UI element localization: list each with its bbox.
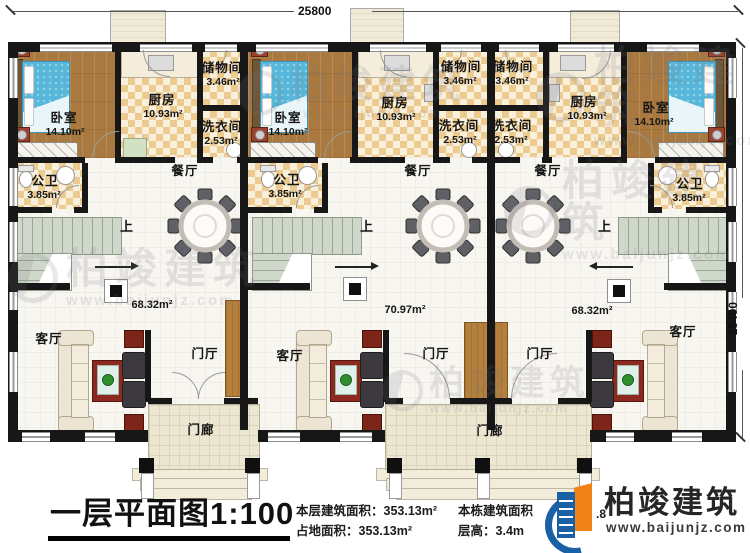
column	[607, 279, 631, 303]
wall-interior	[621, 52, 627, 157]
room-area-kitchen: 10.93m²	[567, 111, 606, 122]
column	[343, 277, 367, 301]
room-label-kitchen: 厨房	[381, 97, 408, 110]
window	[728, 58, 737, 98]
window	[647, 44, 699, 52]
dim-tick	[5, 5, 16, 16]
room-area-storage: 3.46m²	[495, 76, 528, 87]
room-area-bath: 3.85m²	[268, 189, 301, 200]
wall-entry	[224, 398, 258, 404]
dining-table-set	[405, 188, 481, 264]
wall-interior	[433, 157, 450, 163]
window	[728, 352, 737, 392]
logo-building-orange	[574, 483, 592, 531]
dim-line-top	[12, 11, 294, 12]
armchair	[590, 352, 614, 379]
dim-label-width: 25800	[298, 5, 331, 17]
porch-column	[577, 458, 592, 473]
sofa	[309, 344, 327, 418]
bathroom-sink	[56, 166, 75, 185]
room-label-dining: 餐厅	[171, 165, 198, 178]
floor-plan-canvas: 25800 15400	[0, 0, 750, 553]
stat-value: 353.13m²	[359, 524, 413, 538]
window	[268, 432, 300, 442]
window	[256, 44, 328, 52]
window	[9, 58, 18, 98]
room-label-laundry: 洗衣间	[492, 120, 533, 133]
stat-land-area: 占地面积：353.13m²	[296, 525, 412, 538]
room-label-storage: 储物间	[441, 61, 482, 74]
room-area-bedroom: 14.10m²	[45, 127, 84, 138]
side-table	[124, 330, 144, 348]
armchair	[590, 381, 614, 408]
wall-interior	[578, 157, 627, 163]
room-label-bath: 公卫	[31, 175, 58, 188]
room-area-storage: 3.46m²	[206, 77, 239, 88]
stat-label: 本层建筑面积：	[296, 504, 384, 518]
plan-title-text: 一层平面图	[50, 496, 210, 531]
room-area-bedroom: 14.10m²	[634, 117, 673, 128]
room-label-storage: 储物间	[202, 62, 243, 75]
unit-area-label: 70.97m²	[385, 305, 426, 316]
room-label-dining: 餐厅	[404, 165, 431, 178]
stair-arrow-line	[95, 266, 131, 268]
wood-panel	[464, 322, 508, 404]
armchair	[122, 352, 146, 379]
stair-arrow	[131, 262, 139, 270]
stat-value: 353.13m²	[384, 504, 438, 518]
stat-floor-height: 层高：3.4m	[458, 525, 524, 538]
title-underline	[48, 536, 290, 541]
flue-projection	[570, 10, 620, 45]
stair-flight	[12, 217, 122, 255]
wall-foyer	[586, 330, 592, 402]
bed-pillow	[24, 98, 34, 126]
room-area-kitchen: 10.93m²	[143, 109, 182, 120]
room-area-laundry: 2.53m²	[443, 135, 476, 146]
porch-column	[475, 458, 490, 473]
wall-bath	[8, 207, 52, 213]
dim-tick	[735, 38, 746, 49]
flue-projection	[350, 8, 404, 45]
window	[9, 292, 18, 310]
porch-column-base	[389, 473, 402, 499]
bathroom-sink	[658, 166, 677, 185]
room-label-porch: 门廊	[476, 425, 503, 438]
room-label-dining: 餐厅	[534, 165, 561, 178]
logo-building-blue	[557, 492, 575, 538]
stair-up-label: 上	[360, 220, 373, 233]
room-label-living: 客厅	[35, 333, 62, 346]
porch-column	[139, 458, 154, 473]
wall-interior	[439, 105, 487, 111]
armchair	[122, 381, 146, 408]
porch-column	[387, 458, 402, 473]
room-label-foyer: 门厅	[526, 348, 553, 361]
wall-foyer	[145, 330, 151, 402]
wall-foyer	[383, 330, 389, 402]
stat-label: 占地面积：	[296, 524, 359, 538]
nightstand	[708, 127, 725, 142]
porch-column-base	[477, 473, 490, 499]
sofa	[647, 344, 665, 418]
window	[9, 352, 18, 392]
wall-interior	[472, 157, 520, 163]
bathroom-sink	[298, 166, 317, 185]
bed	[666, 54, 724, 138]
wall-interior	[197, 157, 213, 163]
wall-interior	[655, 157, 726, 163]
room-label-bath: 公卫	[273, 174, 300, 187]
wall-bath	[248, 207, 292, 213]
room-area-bath: 3.85m²	[672, 193, 705, 204]
room-label-storage: 储物间	[493, 61, 534, 74]
plan-title: 一层平面图1:100	[50, 498, 294, 529]
window	[22, 432, 50, 442]
room-area-laundry: 2.53m²	[494, 135, 527, 146]
wall-interior	[237, 157, 318, 163]
armchair	[360, 352, 384, 379]
wall-party	[487, 52, 495, 430]
porch-column	[245, 458, 260, 473]
nightstand	[251, 127, 268, 142]
plant	[102, 374, 114, 386]
sofa-group	[590, 328, 678, 432]
bed-pillow	[262, 98, 272, 126]
stair-up-label: 上	[598, 220, 611, 233]
dining-table-set	[167, 188, 243, 264]
room-label-kitchen: 厨房	[148, 94, 175, 107]
wall-stair	[8, 283, 70, 290]
sofa-group	[58, 328, 146, 432]
stat-label: 层高：	[458, 524, 496, 538]
unit-area-label: 68.32m²	[132, 300, 173, 311]
stat-floor-area: 本层建筑面积：353.13m²	[296, 505, 437, 518]
window	[606, 432, 634, 442]
brand-url: www.baijunjz.com	[606, 521, 747, 535]
brand-logo-icon	[544, 483, 604, 549]
dim-tick	[733, 5, 744, 16]
side-table	[592, 330, 612, 348]
unit-area-label: 68.32m²	[572, 306, 613, 317]
window	[340, 432, 372, 442]
bed-pillow	[24, 66, 34, 94]
stair-flight	[252, 217, 362, 255]
stat-total-area: 本栋建筑面积	[458, 505, 533, 518]
window	[728, 222, 737, 262]
stair-arrow-line	[335, 266, 371, 268]
dim-label-height: 15400	[727, 302, 739, 335]
dim-line-top	[372, 11, 738, 12]
window	[40, 44, 112, 52]
flue-projection	[110, 10, 166, 45]
wall-interior	[8, 157, 85, 163]
window	[672, 432, 702, 442]
room-label-kitchen: 厨房	[570, 96, 597, 109]
side-table	[362, 330, 382, 348]
room-label-living: 客厅	[276, 350, 303, 363]
room-label-laundry: 洗衣间	[439, 120, 480, 133]
window	[85, 432, 115, 442]
room-area-bedroom: 14.10m²	[268, 127, 307, 138]
stat-value: 3.4m	[496, 524, 525, 538]
window	[728, 168, 737, 206]
room-label-porch: 门廊	[187, 424, 214, 437]
column	[104, 279, 128, 303]
sofa-group	[296, 328, 384, 432]
wall-bath	[686, 207, 726, 213]
room-label-bedroom: 卧室	[50, 112, 77, 125]
wall-bath	[322, 163, 328, 213]
room-area-storage: 3.46m²	[443, 76, 476, 87]
dining-table-set	[495, 188, 571, 264]
room-label-foyer: 门厅	[191, 348, 218, 361]
wall-interior	[115, 157, 175, 163]
bed-headboard	[715, 59, 724, 135]
room-label-bedroom: 卧室	[642, 102, 669, 115]
wall-entry	[450, 398, 512, 404]
window	[9, 222, 18, 262]
bed-pillow	[704, 66, 714, 94]
dim-line-right	[742, 370, 743, 438]
sofa	[663, 336, 678, 426]
stair-arrow-line	[597, 266, 633, 268]
wall-entry	[148, 398, 172, 404]
wall-interior	[203, 105, 240, 111]
room-label-living: 客厅	[669, 326, 696, 339]
wall-interior	[352, 52, 358, 157]
wall-interior	[495, 105, 543, 111]
wall-stair	[664, 283, 726, 290]
room-label-laundry: 洗衣间	[202, 121, 243, 134]
wall-entry	[385, 398, 403, 404]
window	[9, 168, 18, 206]
wall-interior	[542, 157, 552, 163]
room-label-bedroom: 卧室	[274, 112, 301, 125]
armchair	[360, 381, 384, 408]
room-area-bath: 3.85m²	[27, 190, 60, 201]
plant	[622, 374, 634, 386]
sofa	[71, 344, 89, 418]
brand-name: 柏竣建筑	[604, 487, 740, 518]
dim-tick	[735, 432, 746, 443]
wall-stair	[248, 283, 310, 290]
wall-entry	[558, 398, 590, 404]
wall-party	[240, 52, 248, 430]
wall-bath	[82, 163, 88, 213]
stat-label: 本栋建筑面积	[458, 504, 533, 518]
kitchen-appliance	[549, 84, 560, 102]
stair-flight	[618, 217, 728, 255]
wall-interior	[350, 157, 405, 163]
room-area-laundry: 2.53m²	[204, 136, 237, 147]
stair-arrow	[589, 262, 597, 270]
bed-pillow	[704, 98, 714, 126]
bed-pillow	[262, 66, 272, 94]
stove	[123, 138, 147, 158]
stair-arrow	[371, 262, 379, 270]
plan-scale: 1:100	[210, 496, 294, 531]
stair-up-label: 上	[120, 220, 133, 233]
plant	[340, 374, 352, 386]
dim-line-right	[742, 48, 743, 298]
room-label-foyer: 门厅	[422, 348, 449, 361]
room-label-bath: 公卫	[676, 178, 703, 191]
wall-interior	[543, 52, 549, 157]
room-area-kitchen: 10.93m²	[376, 112, 415, 123]
